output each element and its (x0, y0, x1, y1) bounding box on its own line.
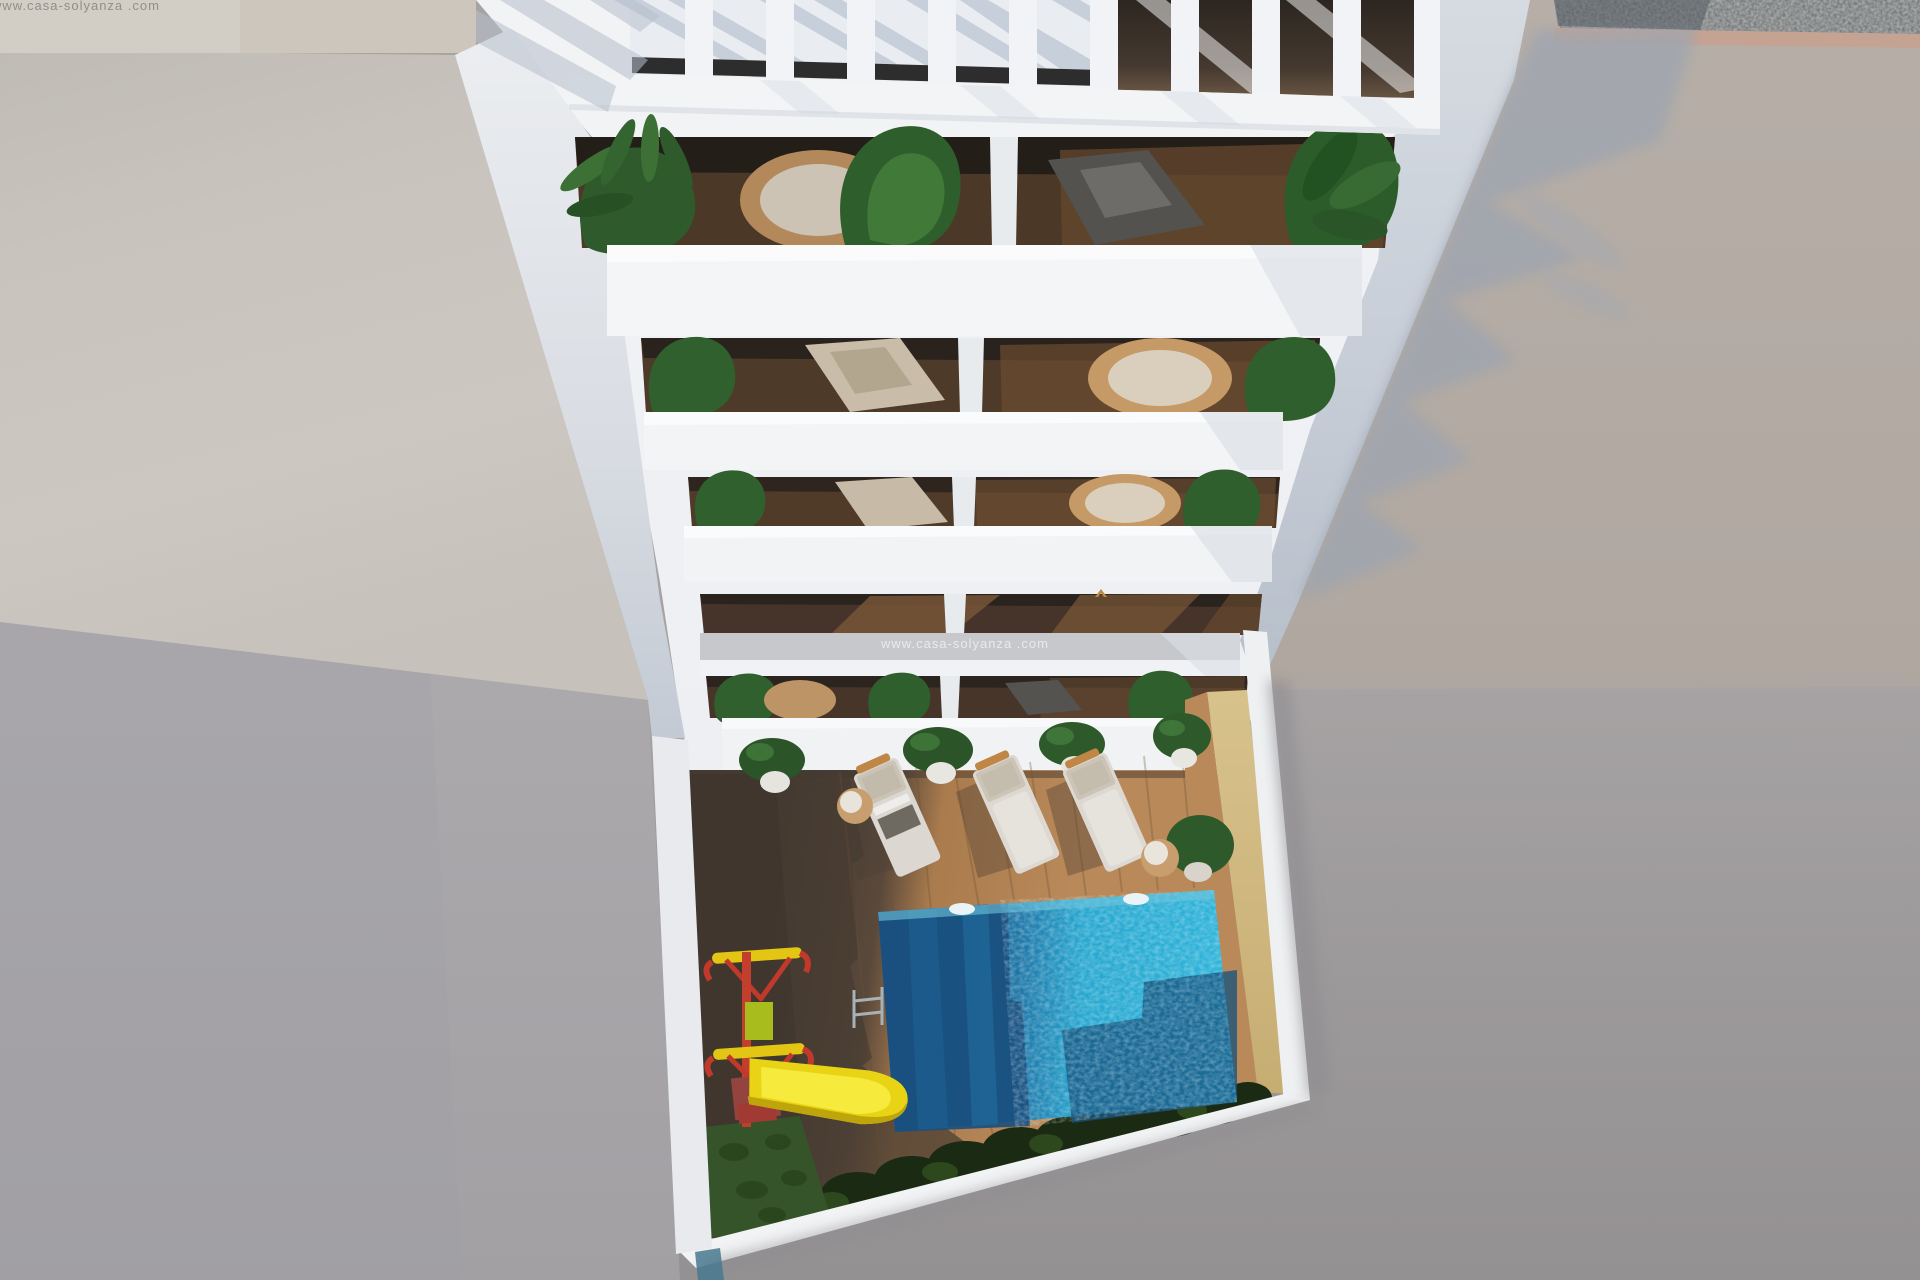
svg-text:www.casa-solyanza .com: www.casa-solyanza .com (0, 0, 160, 13)
svg-text:www.casa-solyanza .com: www.casa-solyanza .com (880, 636, 1049, 651)
